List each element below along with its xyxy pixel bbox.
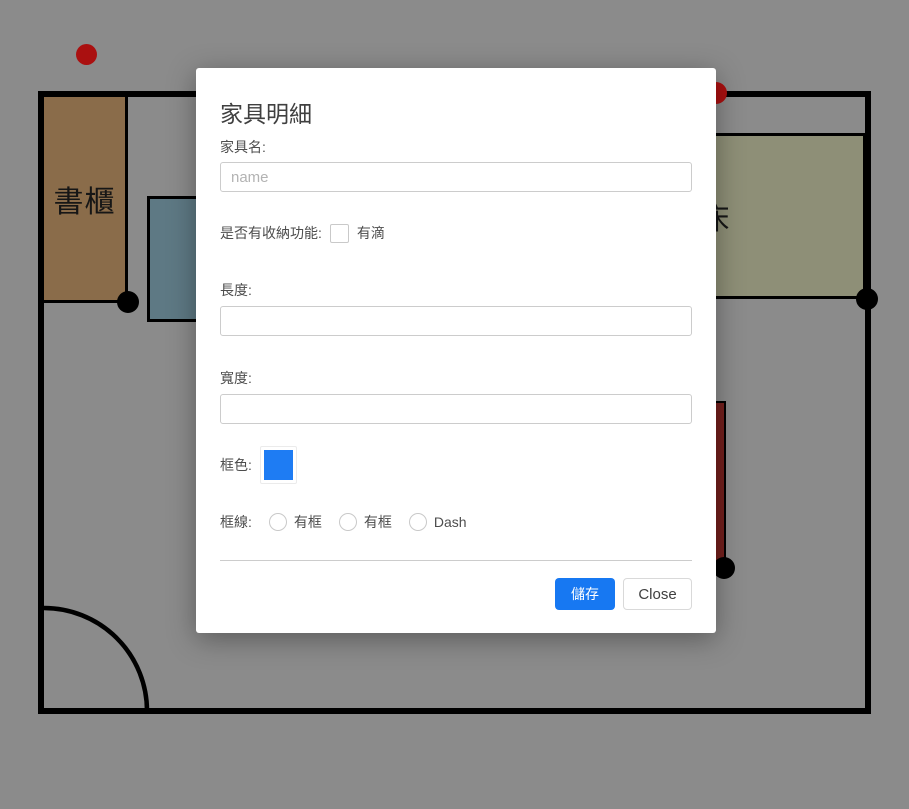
length-input[interactable] (220, 306, 692, 336)
frame-line-row: 框線: 有框 有框 Dash (220, 513, 467, 530)
black-handle-dot[interactable] (713, 557, 735, 579)
black-handle-dot[interactable] (117, 291, 139, 313)
frame-line-radio-solid-1[interactable] (269, 513, 287, 531)
storage-label: 是否有收納功能: (220, 223, 322, 243)
storage-checkbox[interactable] (330, 224, 349, 243)
frame-line-radio-dash[interactable] (409, 513, 427, 531)
furniture-detail-modal: 家具明細 家具名: 是否有收納功能: 有滴 長度: 寬度: 框色: 框線: 有框… (196, 68, 716, 633)
frame-line-radio-label-3: Dash (434, 514, 467, 530)
modal-title: 家具明細 (220, 95, 312, 129)
name-input[interactable] (220, 162, 692, 192)
footer-divider (220, 560, 692, 561)
frame-color-picker[interactable] (260, 446, 297, 484)
frame-color-swatch (264, 450, 293, 480)
length-field-label: 長度: (220, 280, 252, 300)
modal-footer: 儲存 Close (220, 578, 692, 610)
bookshelf-label: 書櫃 (54, 177, 116, 221)
close-button[interactable]: Close (623, 578, 692, 610)
frame-line-radio-solid-2[interactable] (339, 513, 357, 531)
red-handle-dot[interactable] (76, 44, 97, 65)
save-button[interactable]: 儲存 (555, 578, 615, 610)
storage-checkbox-label: 有滴 (357, 223, 385, 243)
frame-line-radio-label-2: 有框 (364, 512, 392, 532)
frame-color-row: 框色: (220, 450, 297, 480)
furniture-bookshelf[interactable]: 書櫃 (41, 94, 128, 303)
frame-color-label: 框色: (220, 455, 252, 475)
frame-line-label: 框線: (220, 512, 252, 532)
name-field-label: 家具名: (220, 137, 266, 157)
storage-row: 是否有收納功能: 有滴 (220, 224, 385, 242)
frame-line-radio-label-1: 有框 (294, 512, 322, 532)
width-field-label: 寬度: (220, 368, 252, 388)
width-input[interactable] (220, 394, 692, 424)
black-handle-dot[interactable] (856, 288, 878, 310)
